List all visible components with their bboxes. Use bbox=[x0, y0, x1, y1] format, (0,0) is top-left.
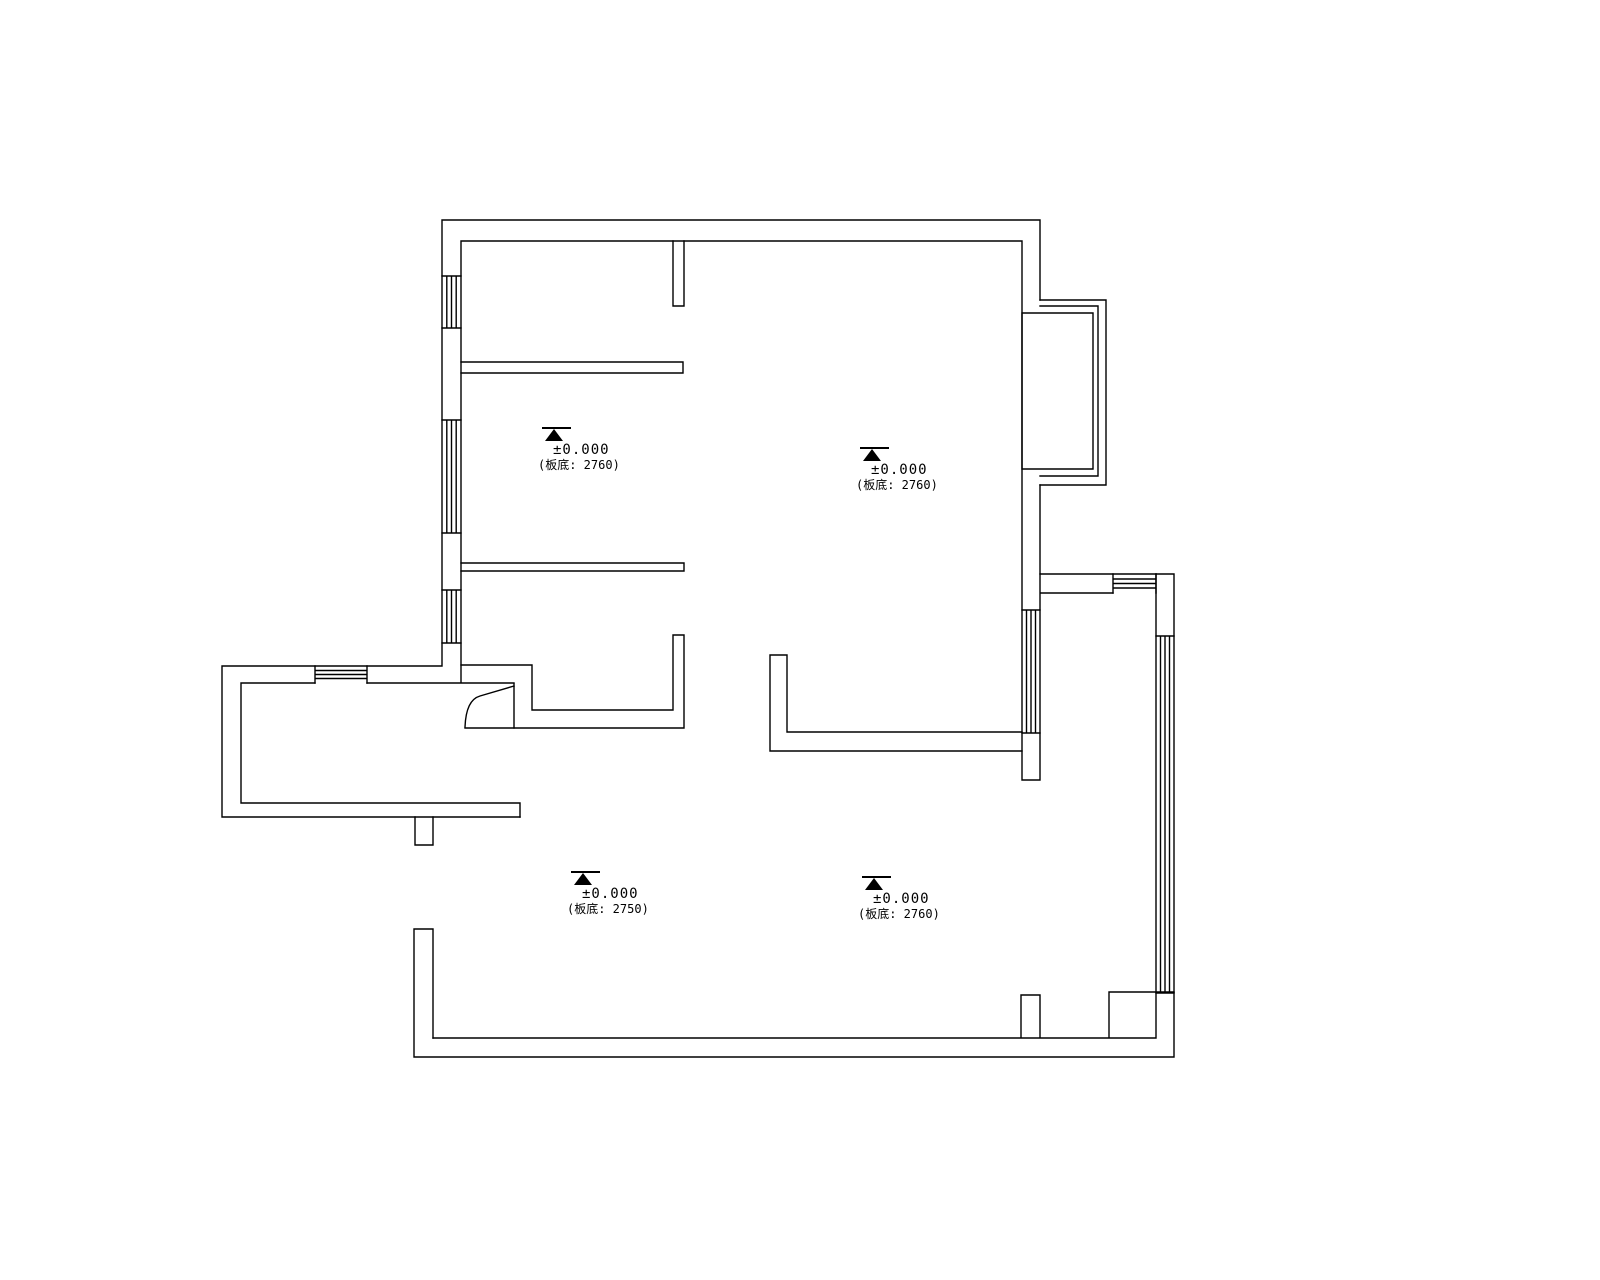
slab-bottom-note: (板底: 2750) bbox=[567, 902, 649, 916]
bay-window bbox=[1022, 300, 1106, 485]
interior-walls bbox=[461, 241, 1022, 751]
elevation-value: ±0.000 bbox=[871, 462, 928, 478]
window-right-wall bbox=[1156, 636, 1174, 993]
windows bbox=[315, 276, 1174, 993]
elevation-triangle-icon bbox=[863, 449, 881, 461]
elevation-value: ±0.000 bbox=[553, 442, 610, 458]
elevation-triangle-icon bbox=[545, 429, 563, 441]
floor-plan-drawing bbox=[0, 0, 1600, 1280]
door-leaf bbox=[465, 686, 514, 727]
slab-bottom-note: (板底: 2760) bbox=[858, 907, 940, 921]
exterior-walls-inner bbox=[241, 241, 1174, 1038]
elevation-value: ±0.000 bbox=[582, 886, 639, 902]
window-right-top-wall bbox=[1113, 574, 1156, 593]
door bbox=[465, 684, 514, 728]
elevation-value: ±0.000 bbox=[873, 891, 930, 907]
elevation-triangle-icon bbox=[865, 878, 883, 890]
window-left-lower bbox=[442, 590, 461, 643]
slab-bottom-note: (板底: 2760) bbox=[856, 478, 938, 492]
elevation-triangle-icon bbox=[574, 873, 592, 885]
window-left-middle bbox=[442, 420, 461, 533]
window-left-upper bbox=[442, 276, 461, 328]
window-middle-interior bbox=[1022, 610, 1040, 733]
window-extension-top bbox=[315, 666, 367, 683]
floor-plan-canvas: ±0.000 (板底: 2760) ±0.000 (板底: 2760) ±0.0… bbox=[0, 0, 1600, 1280]
slab-bottom-note: (板底: 2760) bbox=[538, 458, 620, 472]
